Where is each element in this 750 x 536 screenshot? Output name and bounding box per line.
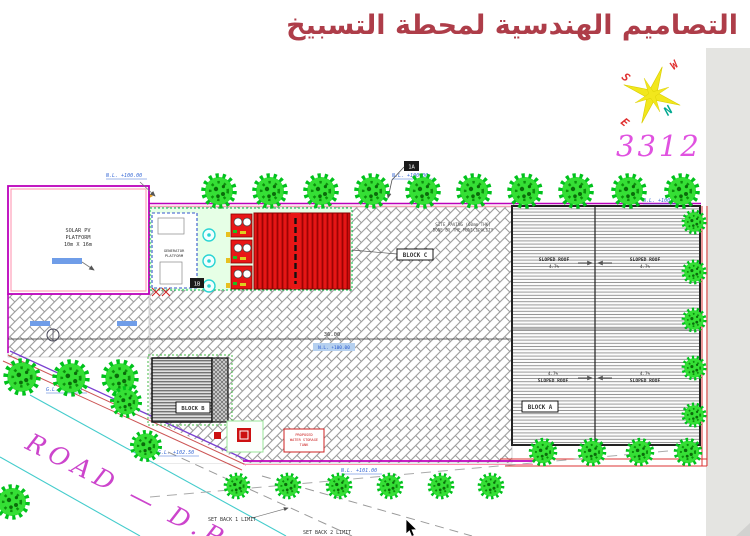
tree-icon bbox=[509, 175, 540, 206]
unit-fan bbox=[243, 218, 251, 226]
block-b-label: BLOCK B bbox=[181, 406, 205, 412]
tree-icon bbox=[225, 474, 248, 497]
tank bbox=[237, 428, 251, 442]
municipality-note-1: SITE PAVING (60mm THK) bbox=[435, 222, 490, 227]
drawing-number: 3312 bbox=[616, 129, 702, 163]
sloped-roof-label-nw: SLOPED ROOF bbox=[539, 257, 570, 263]
tank-note-1: PROPOSED bbox=[295, 433, 312, 437]
selected-level-label: N.L. +100.00 bbox=[318, 345, 350, 351]
unit-vent bbox=[240, 283, 246, 286]
unit-vent bbox=[240, 257, 246, 260]
blower-hub bbox=[207, 259, 211, 263]
compass-north: N bbox=[660, 102, 676, 119]
setback-1-label: SET BACK 1 LIMIT bbox=[208, 517, 256, 523]
sloped-roof-label-ne: SLOPED ROOF bbox=[630, 257, 661, 263]
connector bbox=[226, 232, 230, 237]
slide-title: التصاميم الهندسية لمحطة التسبيخ bbox=[286, 10, 738, 41]
sloped-roof-label-sw: SLOPED ROOF bbox=[538, 378, 569, 384]
unit-fan bbox=[234, 270, 242, 278]
sloped-roof-slope-sw: 4.7% bbox=[548, 371, 559, 376]
generator-unit bbox=[231, 214, 252, 237]
annotation-bar bbox=[30, 321, 50, 326]
block-a-building: SLOPED ROOF 4.7% SLOPED ROOF 4.7% 4.7% S… bbox=[512, 206, 700, 445]
unit-fan bbox=[234, 244, 242, 252]
marker-1b: 1B bbox=[194, 282, 201, 288]
blower-hub bbox=[207, 233, 211, 237]
tree-icon bbox=[613, 175, 644, 206]
mouse-cursor bbox=[406, 519, 417, 536]
block-b-building: BLOCK B bbox=[148, 355, 232, 425]
marker-1a-leader bbox=[388, 167, 404, 198]
solar-pv-platform: SOLAR PV PLATFORM 10m X 16m bbox=[8, 186, 149, 294]
generator-label-2: PLATFORM bbox=[165, 253, 184, 258]
marker-1a: 1A bbox=[408, 165, 415, 171]
tree-icon bbox=[429, 474, 452, 497]
tree-icon bbox=[305, 175, 336, 206]
municipality-note-2: DONE BY THE MUNICIPALITY bbox=[433, 228, 494, 233]
sloped-roof-slope-ne: 4.7% bbox=[640, 264, 651, 269]
level-nl101-bottom: N.L. +101.00 bbox=[340, 468, 377, 474]
tree-icon bbox=[479, 474, 502, 497]
dimension-36-label: 36.00 bbox=[324, 332, 341, 338]
unit-lamp bbox=[233, 282, 237, 285]
generator-unit bbox=[231, 240, 252, 263]
compass-east: E bbox=[618, 115, 632, 129]
tree-icon bbox=[254, 175, 285, 206]
level-gl10250: G.L. +102.50 bbox=[158, 450, 194, 456]
annotation-bar bbox=[117, 321, 137, 326]
unit-vent bbox=[240, 231, 246, 234]
unit-lamp bbox=[233, 230, 237, 233]
unit-fan bbox=[243, 244, 251, 252]
unit-fan bbox=[243, 270, 251, 278]
block-a-label: BLOCK A bbox=[528, 405, 553, 411]
solar-platform-label-1: SOLAR PV bbox=[66, 228, 91, 234]
container-bank bbox=[254, 213, 350, 289]
generator-unit bbox=[231, 266, 252, 289]
tank-note-3: TANK bbox=[300, 443, 309, 447]
setback-1-leader bbox=[252, 508, 288, 518]
slide: التصاميم الهندسية لمحطة التسبيخ bbox=[0, 0, 750, 536]
tree-icon bbox=[666, 175, 697, 206]
tree-icon bbox=[327, 474, 350, 497]
tree-icon bbox=[276, 474, 299, 497]
connector bbox=[226, 283, 230, 288]
tree-icon bbox=[0, 486, 28, 517]
sloped-roof-slope-nw: 4.7% bbox=[549, 264, 560, 269]
solar-platform-label-3: 10m X 16m bbox=[64, 242, 92, 248]
site-plan-drawing: SOLAR PV PLATFORM 10m X 16m GENERATOR PL… bbox=[0, 0, 750, 536]
tree-icon bbox=[560, 175, 591, 206]
solar-platform-label-2: PLATFORM bbox=[66, 235, 91, 241]
solar-annotation-bar bbox=[52, 258, 82, 264]
block-c-label: BLOCK C bbox=[403, 253, 428, 259]
tree-icon bbox=[6, 361, 39, 394]
setback-2-label: SET BACK 2 LIMIT bbox=[303, 530, 351, 536]
sloped-roof-label-se: SLOPED ROOF bbox=[630, 378, 661, 384]
tree-icon bbox=[458, 175, 489, 206]
compass-west: W bbox=[668, 57, 682, 72]
level-nl100-topleft: N.L. +100.00 bbox=[105, 173, 142, 179]
generator-container-strip: GENERATOR PLATFORM bbox=[150, 208, 352, 296]
generator-unit-column bbox=[231, 214, 252, 289]
unit-lamp bbox=[233, 256, 237, 259]
tank-note-2: WATER STORAGE bbox=[290, 438, 318, 442]
blower-hub bbox=[207, 284, 211, 288]
tree-icon bbox=[407, 175, 438, 206]
sloped-roof-slope-se: 4.7% bbox=[640, 371, 651, 376]
tree-icon bbox=[356, 175, 387, 206]
connector bbox=[226, 258, 230, 263]
page-curl bbox=[736, 523, 750, 536]
tree-icon bbox=[378, 474, 401, 497]
compass-south: S bbox=[619, 70, 633, 84]
block-b-hatch-strip bbox=[212, 358, 228, 422]
small-tank bbox=[214, 432, 221, 439]
compass-rose: S W E N bbox=[614, 57, 691, 134]
unit-fan bbox=[234, 218, 242, 226]
tree-icon bbox=[203, 175, 234, 206]
